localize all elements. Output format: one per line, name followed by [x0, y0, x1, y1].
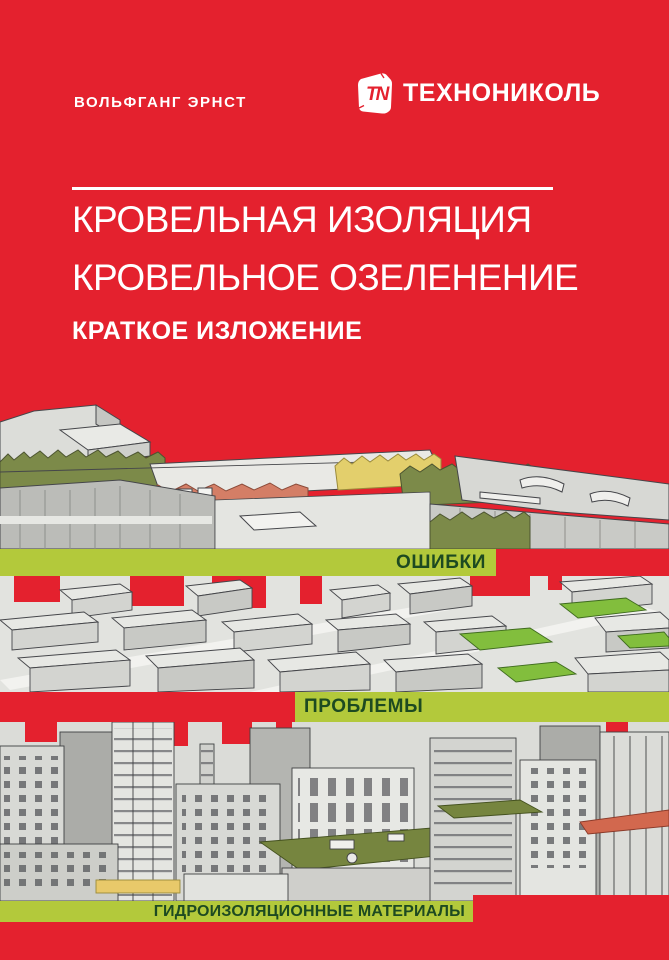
bottom-red-strip — [0, 922, 669, 960]
author-name: ВОЛЬФГАНГ ЭРНСТ — [74, 94, 247, 111]
title-divider — [72, 187, 553, 190]
banner-problems-lime-segment: ПРОБЛЕМЫ — [295, 692, 669, 722]
banner-materials-label: ГИДРОИЗОЛЯЦИОННЫЕ МАТЕРИАЛЫ — [154, 903, 465, 921]
book-subtitle: КРАТКОЕ ИЗЛОЖЕНИЕ — [72, 317, 362, 346]
banner-problems: ПРОБЛЕМЫ — [0, 692, 669, 722]
tn-cube-icon: TN — [356, 72, 394, 115]
city-aerial-illustration — [0, 576, 669, 692]
city-skyline-illustration — [0, 722, 669, 901]
banner-materials: ГИДРОИЗОЛЯЦИОННЫЕ МАТЕРИАЛЫ — [0, 901, 669, 923]
banner-errors-label: ОШИБКИ — [396, 552, 486, 574]
brand-logo: TN ТЕХНОНИКОЛЬ — [356, 72, 600, 115]
book-title-line-2: КРОВЕЛЬНОЕ ОЗЕЛЕНЕНИЕ — [72, 257, 578, 299]
banner-errors-lime-segment: ОШИБКИ — [0, 549, 496, 576]
banner-errors: ОШИБКИ — [0, 549, 669, 576]
svg-text:TN: TN — [366, 84, 391, 105]
book-title-line-1: КРОВЕЛЬНАЯ ИЗОЛЯЦИЯ — [72, 199, 532, 241]
brand-wordmark: ТЕХНОНИКОЛЬ — [403, 79, 600, 108]
book-cover: ВОЛЬФГАНГ ЭРНСТ TN ТЕХНОНИКОЛЬ КРОВЕЛЬНА… — [0, 0, 669, 960]
roof-garden-illustration — [0, 400, 669, 549]
banner-problems-red-segment — [0, 692, 295, 722]
banner-materials-lime-segment: ГИДРОИЗОЛЯЦИОННЫЕ МАТЕРИАЛЫ — [0, 901, 473, 923]
banner-problems-label: ПРОБЛЕМЫ — [304, 696, 423, 718]
banner-errors-red-segment — [496, 549, 669, 576]
